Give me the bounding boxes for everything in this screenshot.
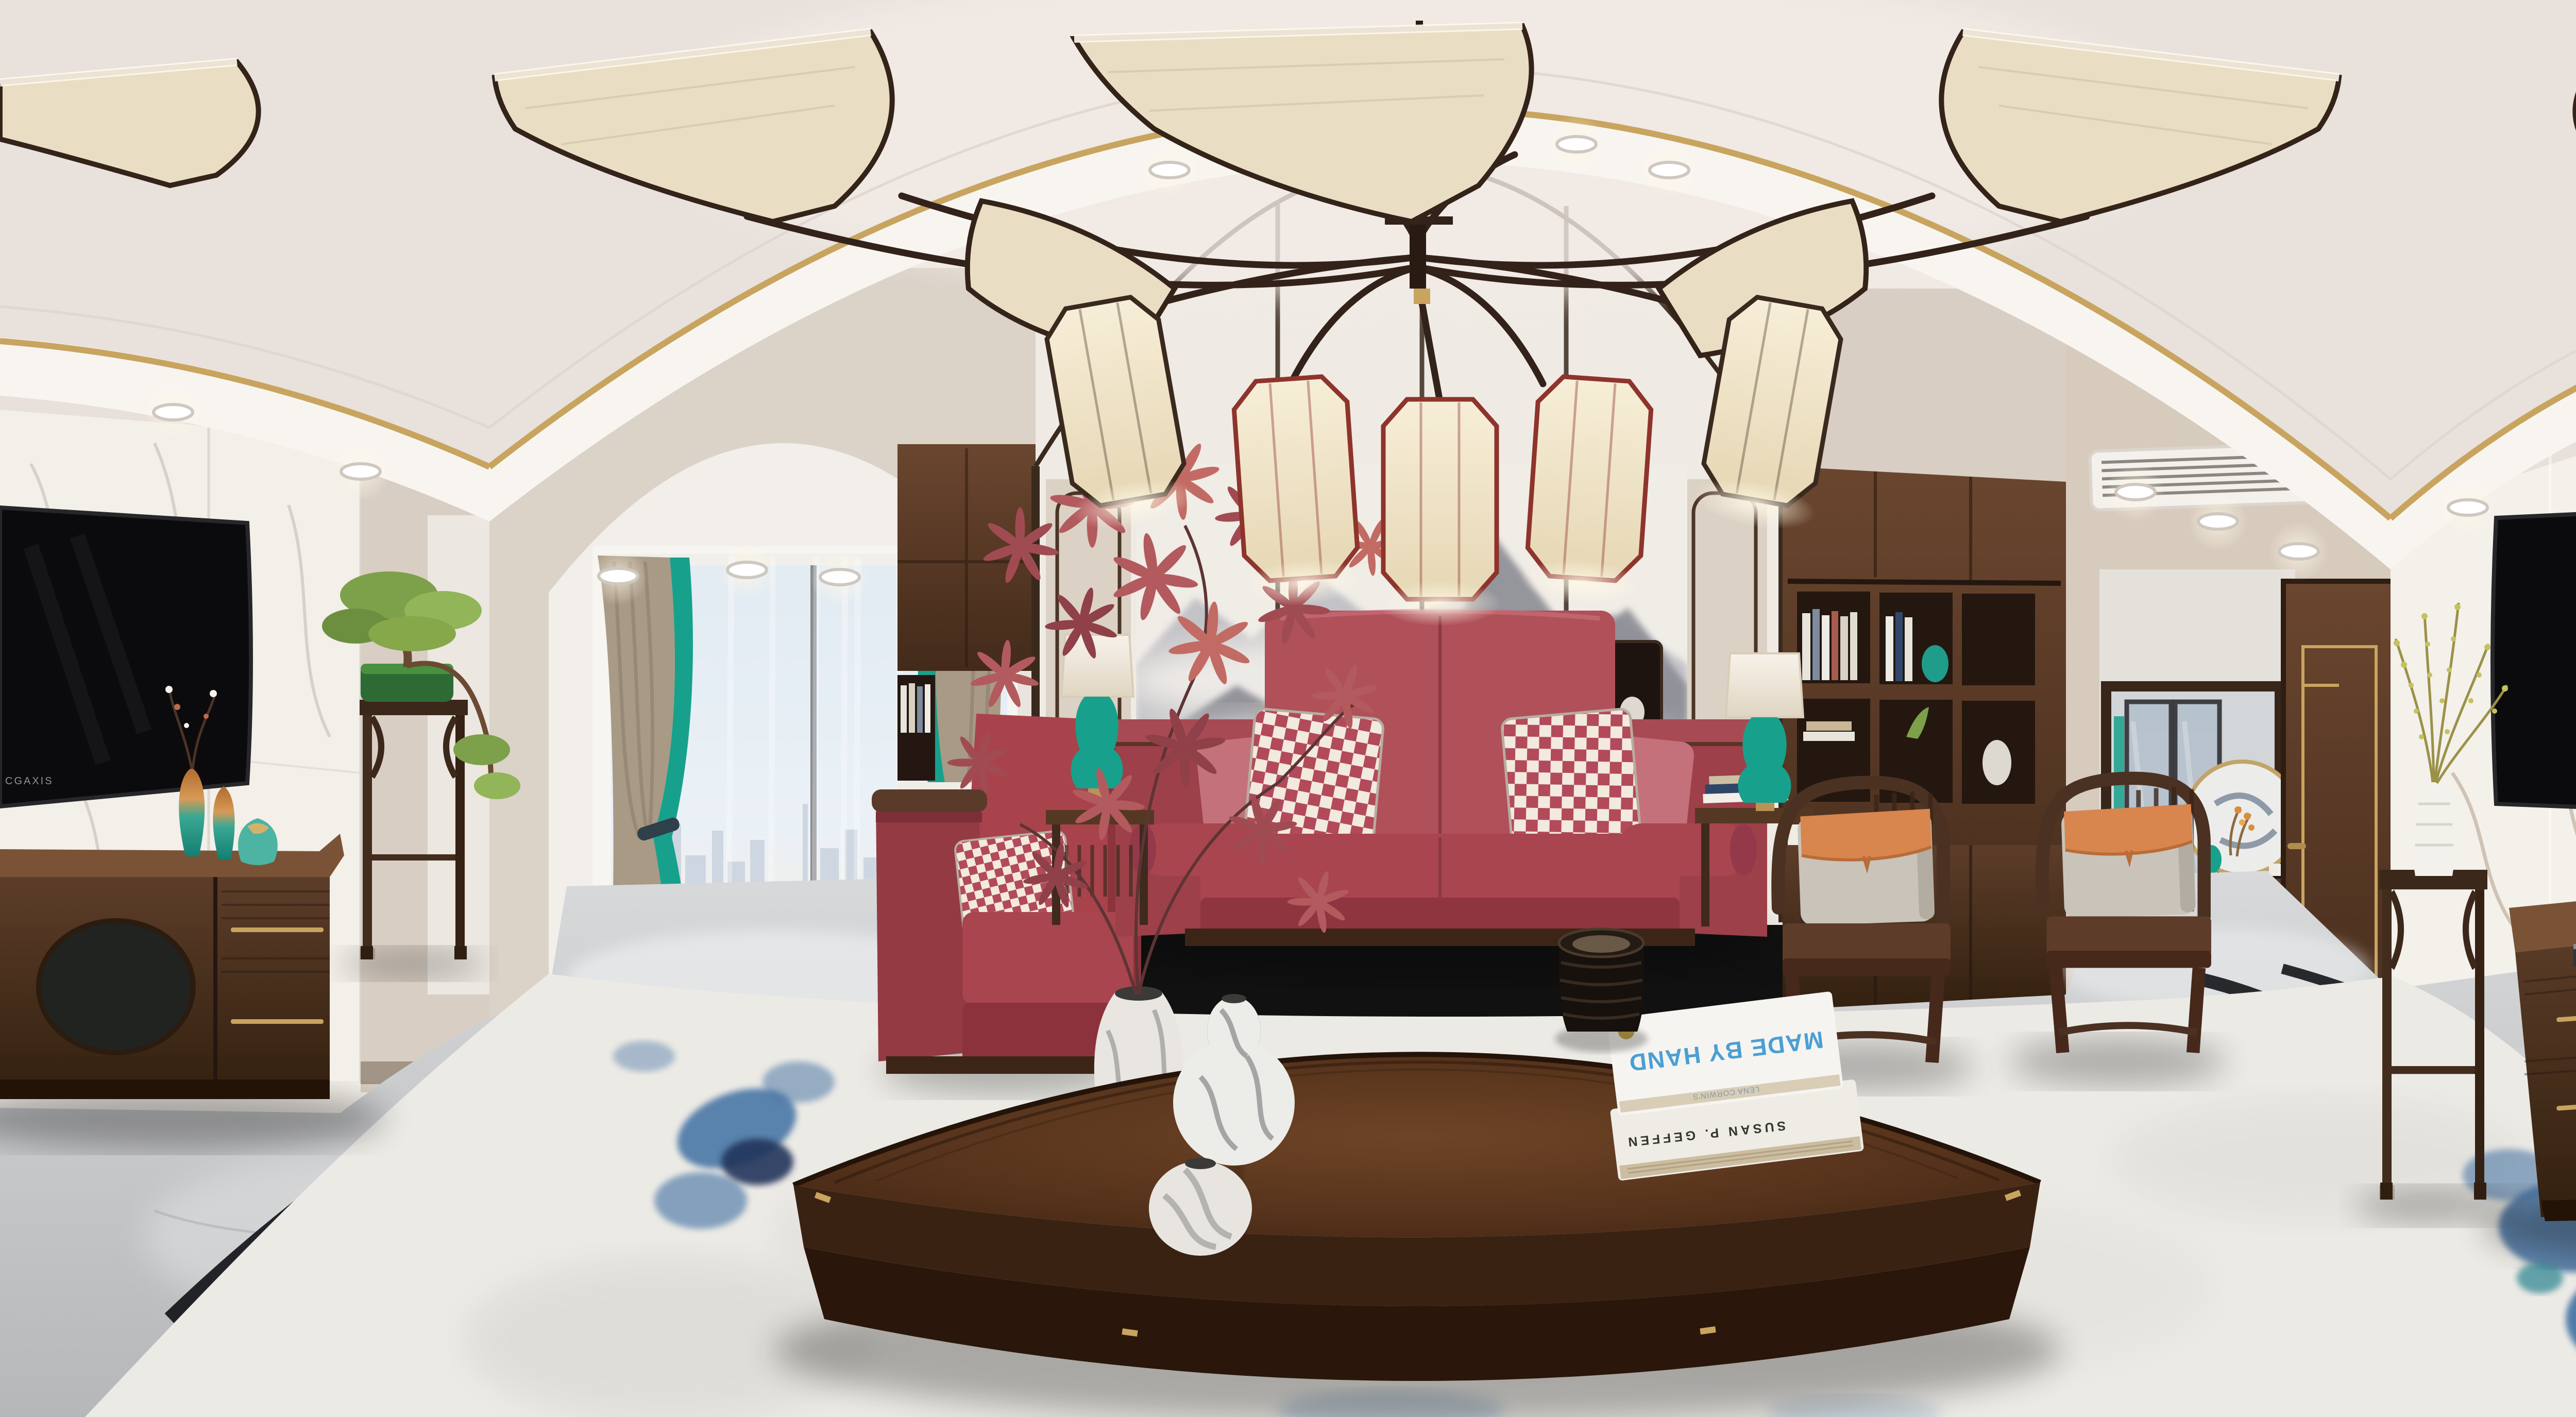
bolster-right (1617, 823, 1757, 876)
downlight (810, 547, 870, 607)
door-handle (2287, 843, 2306, 849)
stone-inlay-door (39, 921, 193, 1053)
downlight (2188, 492, 2248, 551)
downlight (588, 546, 648, 606)
drawer-handle (231, 1019, 324, 1024)
downlight (2438, 478, 2498, 537)
white-ribbed-vase (2412, 781, 2455, 876)
checkered-pillow-right (1501, 709, 1641, 856)
downlight (2106, 462, 2165, 522)
drawer-handle (231, 927, 324, 932)
bolster-left (1129, 823, 1268, 876)
tv-watermark: CGAXIS (5, 775, 82, 787)
bronze-cup (1555, 929, 1648, 1052)
lamp-body-teal (1738, 717, 1791, 803)
downlight (1639, 140, 1699, 200)
lantern-shade-red (1378, 399, 1502, 626)
downlight (2269, 521, 2329, 581)
scene-canvas (0, 0, 2576, 1417)
tv-right (2493, 502, 2576, 817)
downlight (331, 442, 391, 501)
downlight (1547, 114, 1606, 174)
downlight (143, 382, 203, 442)
downlight (717, 540, 777, 600)
tv-left (0, 508, 251, 806)
panorama-living-room-scene: CGAXIS LENA CORWIN'S MADE BY HAND SUSAN … (0, 0, 2576, 1417)
